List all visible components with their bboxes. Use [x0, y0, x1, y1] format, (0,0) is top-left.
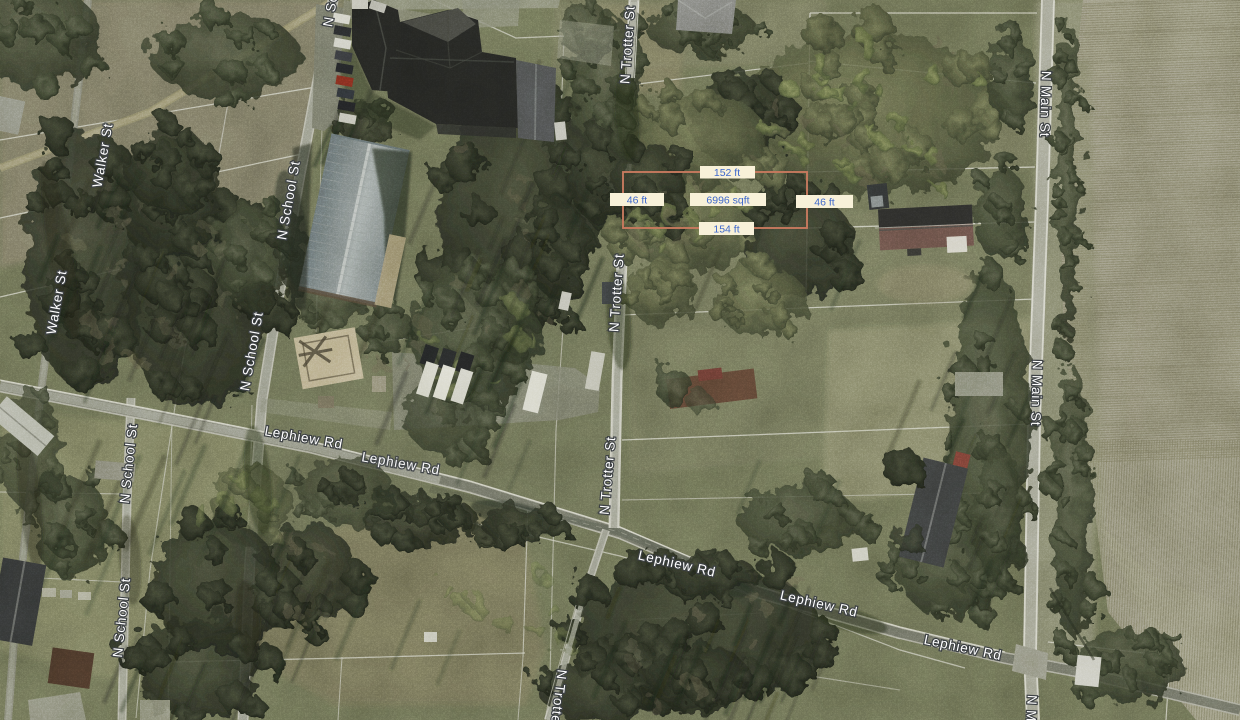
svg-text:N Main St: N Main St [1028, 360, 1045, 427]
svg-text:154 ft: 154 ft [713, 223, 739, 235]
svg-text:6996 sqft: 6996 sqft [706, 194, 749, 206]
svg-text:N Main St: N Main St [1037, 71, 1054, 138]
svg-text:152 ft: 152 ft [714, 167, 740, 179]
svg-text:46 ft: 46 ft [627, 194, 648, 206]
svg-text:46 ft: 46 ft [814, 196, 835, 208]
